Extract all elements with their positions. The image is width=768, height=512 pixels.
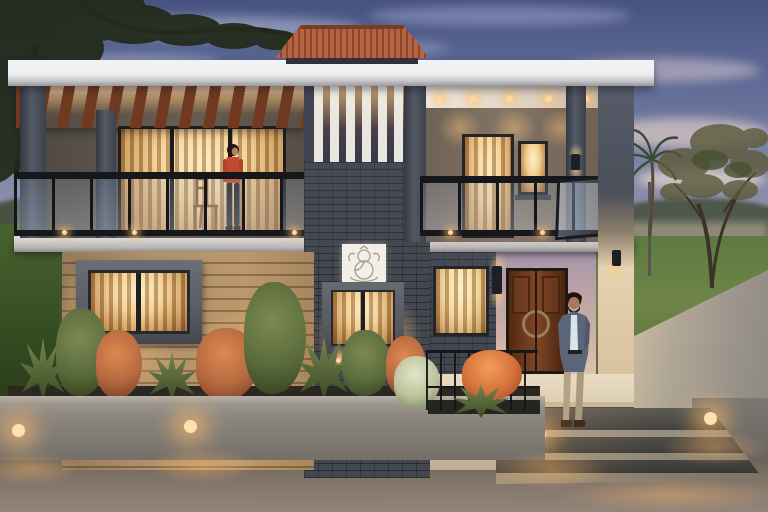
- light-pool: [0, 452, 80, 486]
- left-railing-top-rail: [14, 172, 306, 179]
- light-pool: [560, 478, 768, 512]
- steps-wall-light: [704, 412, 717, 425]
- cloud: [370, 6, 630, 26]
- palm-trunk: [650, 162, 653, 236]
- sconce-glow-up: [486, 248, 510, 268]
- man-shirt: [570, 315, 578, 350]
- woman-face: [232, 148, 238, 156]
- floor-light: [448, 230, 453, 235]
- man-shoe: [574, 420, 586, 427]
- ceiling-downlight: [545, 95, 552, 102]
- floor-light: [292, 230, 297, 235]
- door-handle-split: [535, 308, 537, 340]
- ganesha-plaque: [342, 244, 386, 284]
- architectural-render: Photorealistic dusk rendering of a moder…: [0, 0, 768, 512]
- right-tree: [654, 112, 768, 294]
- ground-left-window-mullion: [136, 273, 141, 331]
- ganesha-line-art: [342, 244, 386, 284]
- ceiling-downlight: [436, 95, 443, 102]
- light-pool: [148, 448, 258, 484]
- floor-light: [62, 230, 67, 235]
- ceiling-downlight: [470, 95, 477, 102]
- sconce-glow-down: [602, 264, 626, 290]
- corner-column-sconce: [612, 250, 621, 266]
- man-face: [569, 297, 580, 309]
- left-railing-bottom-rail: [14, 230, 306, 236]
- man-belt: [568, 350, 582, 354]
- ceiling-downlight: [506, 95, 513, 102]
- left-railing-posts: [14, 178, 306, 232]
- terracotta-roof-cap: [276, 26, 428, 58]
- floor-light: [132, 230, 137, 235]
- man-shoe: [561, 420, 573, 427]
- floor-light: [540, 230, 545, 235]
- man-pants: [563, 372, 571, 420]
- uplight-fixture: [336, 358, 341, 363]
- entry-wall-sconce: [492, 266, 502, 294]
- balcony-column-sconce: [571, 154, 580, 170]
- door-panel: [512, 276, 530, 314]
- white-slats: [314, 86, 408, 164]
- planter-wall-light: [12, 424, 25, 437]
- pergola: [16, 82, 306, 128]
- light-pool: [660, 430, 768, 466]
- man-pants: [575, 372, 584, 420]
- man-near-entrance: [544, 292, 602, 434]
- roof-cap-ridge: [300, 25, 404, 29]
- sconce-glow-up: [566, 138, 586, 155]
- planter-wall-light: [184, 420, 197, 433]
- entry-window-curtains: [436, 269, 486, 333]
